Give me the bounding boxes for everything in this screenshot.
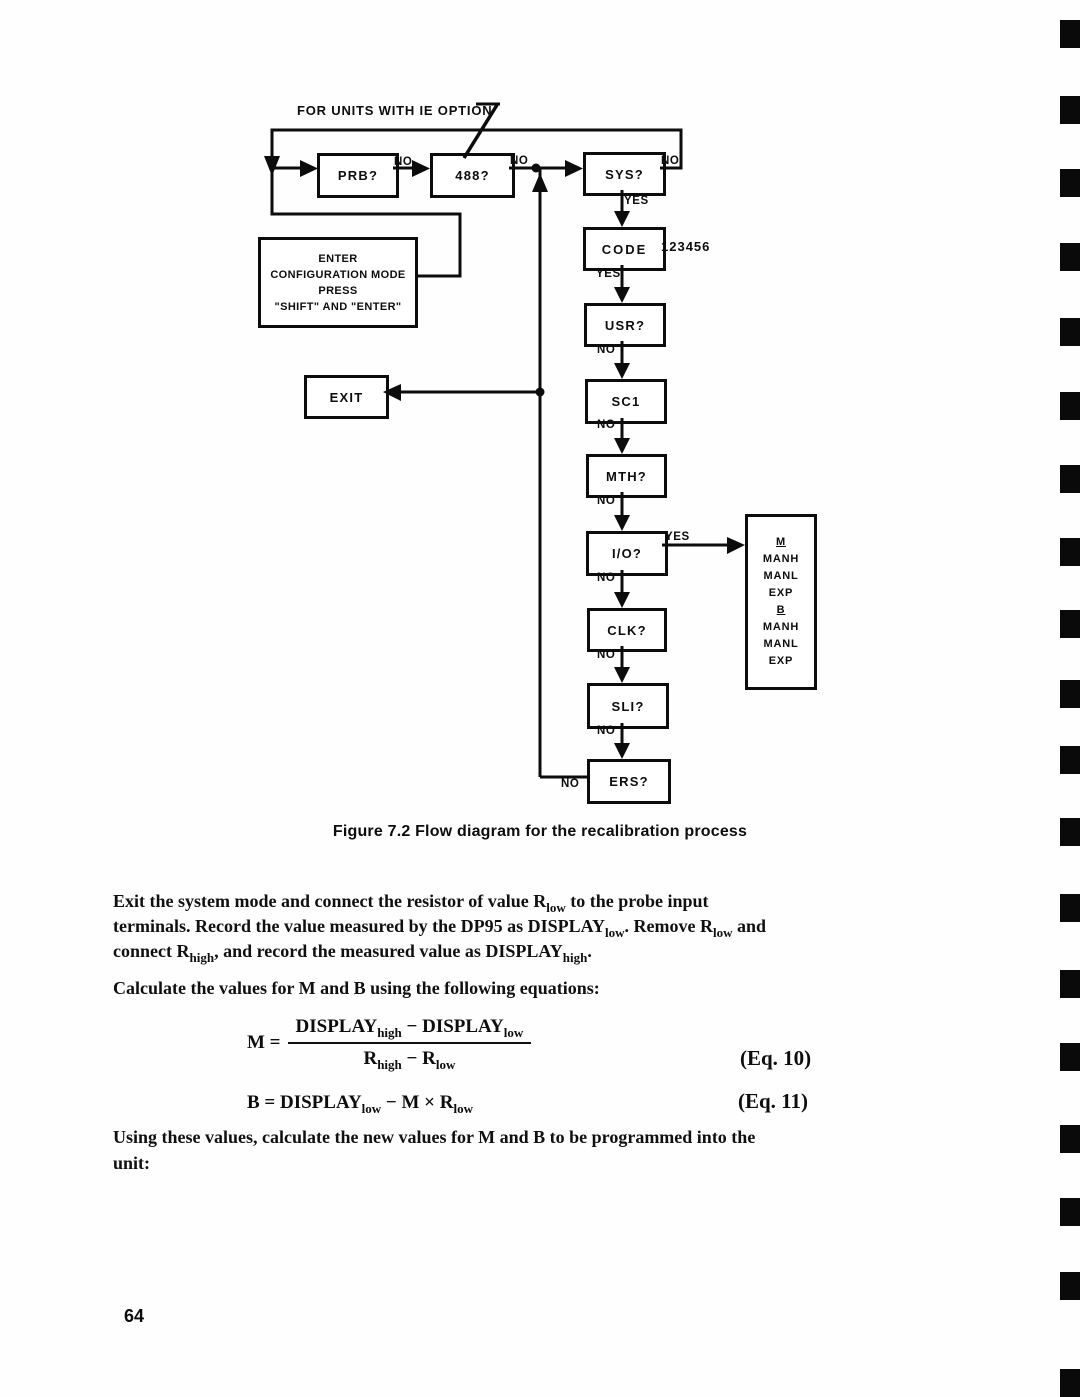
manual-line: B <box>777 602 786 619</box>
equation-b: B = DISPLAYlow − M × Rlow <box>247 1092 473 1114</box>
manual-line: EXP <box>769 585 793 602</box>
flow-node-sc1: SC1 <box>585 379 667 424</box>
paragraph-calculate-values: Calculate the values for M and B using t… <box>113 976 983 1001</box>
arrow-down-icon <box>264 156 280 176</box>
binding-mark <box>1060 169 1080 197</box>
binding-mark <box>1060 20 1080 48</box>
flow-node-enter-config-mode: ENTER CONFIGURATION MODE PRESS "SHIFT" A… <box>258 237 418 328</box>
branch-label-no: NO <box>597 419 615 431</box>
branch-label-no: NO <box>597 495 615 507</box>
config-line: "SHIFT" AND "ENTER" <box>274 299 401 315</box>
binding-mark <box>1060 894 1080 922</box>
binding-mark <box>1060 970 1080 998</box>
arrow-up-icon <box>532 173 548 192</box>
fraction-denominator: Rhigh − Rlow <box>288 1044 532 1070</box>
flow-node-sli: SLI? <box>587 683 669 729</box>
binding-mark <box>1060 1198 1080 1226</box>
config-line: CONFIGURATION MODE <box>270 267 405 283</box>
manual-line: MANH <box>763 551 799 568</box>
arrow-down-icon <box>614 211 630 227</box>
config-line: ENTER <box>318 251 357 267</box>
arrow-down-icon <box>614 287 630 303</box>
flow-node-mth: MTH? <box>586 454 667 498</box>
paragraph-exit-system-mode: Exit the system mode and connect the res… <box>113 889 983 964</box>
figure-caption: Figure 7.2 Flow diagram for the recalibr… <box>0 823 1080 841</box>
branch-label-no: NO <box>597 572 615 584</box>
manual-line: MANL <box>764 636 799 653</box>
branch-label-no: NO <box>661 155 679 167</box>
manual-line: MANL <box>764 568 799 585</box>
binding-mark <box>1060 465 1080 493</box>
flow-node-clk: CLK? <box>587 608 667 652</box>
text-line: unit: <box>113 1150 983 1176</box>
text-line: Exit the system mode and connect the res… <box>113 889 983 914</box>
text-line: Calculate the values for M and B using t… <box>113 976 983 1001</box>
page-number: 64 <box>124 1306 144 1327</box>
manual-line: MANH <box>763 619 799 636</box>
branch-label-no: NO <box>597 344 615 356</box>
junction-dot <box>532 164 541 173</box>
flow-node-exit: EXIT <box>304 375 389 419</box>
config-line: PRESS <box>318 283 357 299</box>
branch-label-no: NO <box>394 156 412 168</box>
binding-mark <box>1060 392 1080 420</box>
fraction: DISPLAYhigh − DISPLAYlow Rhigh − Rlow <box>288 1016 532 1070</box>
flow-node-sys: SYS? <box>583 152 666 196</box>
text-line: Using these values, calculate the new va… <box>113 1124 983 1150</box>
arrow-down-icon <box>614 515 630 531</box>
branch-label-yes: YES <box>596 268 621 280</box>
binding-mark <box>1060 243 1080 271</box>
arrow-down-icon <box>614 743 630 759</box>
flow-node-code: CODE <box>583 227 666 271</box>
arrow-down-icon <box>614 438 630 454</box>
flow-node-488: 488? <box>430 153 515 198</box>
flow-node-manual-params: M MANH MANL EXP B MANH MANL EXP <box>745 514 817 690</box>
text-line: terminals. Record the value measured by … <box>113 914 983 939</box>
text-line: connect Rhigh, and record the measured v… <box>113 939 983 964</box>
code-value: 123456 <box>661 239 710 254</box>
arrow-down-icon <box>614 592 630 608</box>
paragraph-using-values: Using these values, calculate the new va… <box>113 1124 983 1176</box>
loop-lines <box>272 104 741 777</box>
arrow-right-icon <box>412 160 430 177</box>
arrow-right-icon <box>565 160 583 177</box>
binding-mark <box>1060 538 1080 566</box>
manual-line: EXP <box>769 653 793 670</box>
scanned-manual-page: FOR UNITS WITH IE OPTION PRB? 488? SYS? … <box>0 0 1080 1397</box>
arrow-right-icon <box>300 160 318 177</box>
binding-mark <box>1060 1043 1080 1071</box>
binding-mark <box>1060 318 1080 346</box>
flow-node-usr: USR? <box>584 303 666 347</box>
equation-11-tag: (Eq. 11) <box>738 1089 808 1114</box>
branch-label-no: NO <box>597 649 615 661</box>
binding-mark <box>1060 96 1080 124</box>
branch-label-yes: YES <box>665 531 690 543</box>
branch-label-no: NO <box>597 725 615 737</box>
flow-node-ers: ERS? <box>587 759 671 804</box>
junction-dot <box>536 388 545 397</box>
arrow-down-icon <box>614 363 630 379</box>
binding-mark <box>1060 1369 1080 1397</box>
ie-option-annotation: FOR UNITS WITH IE OPTION <box>297 103 492 118</box>
binding-mark <box>1060 610 1080 638</box>
arrow-right-icon <box>727 537 745 554</box>
binding-mark <box>1060 680 1080 708</box>
branch-label-yes: YES <box>624 195 649 207</box>
equation-body: B = DISPLAYlow − M × Rlow <box>247 1092 473 1114</box>
flow-node-io: I/O? <box>586 531 668 576</box>
manual-line: M <box>776 534 786 551</box>
branch-label-no: NO <box>510 155 528 167</box>
fraction-numerator: DISPLAYhigh − DISPLAYlow <box>288 1016 532 1044</box>
branch-label-no: NO <box>561 778 579 790</box>
arrow-down-icon <box>614 667 630 683</box>
equation-10-tag: (Eq. 10) <box>740 1046 811 1071</box>
equation-lhs: M = <box>247 1032 281 1054</box>
flow-node-prb: PRB? <box>317 153 399 198</box>
equation-m: M = DISPLAYhigh − DISPLAYlow Rhigh − Rlo… <box>247 1016 531 1070</box>
flowchart-connectors <box>0 0 1080 1397</box>
binding-mark <box>1060 1272 1080 1300</box>
binding-mark <box>1060 1125 1080 1153</box>
binding-mark <box>1060 746 1080 774</box>
